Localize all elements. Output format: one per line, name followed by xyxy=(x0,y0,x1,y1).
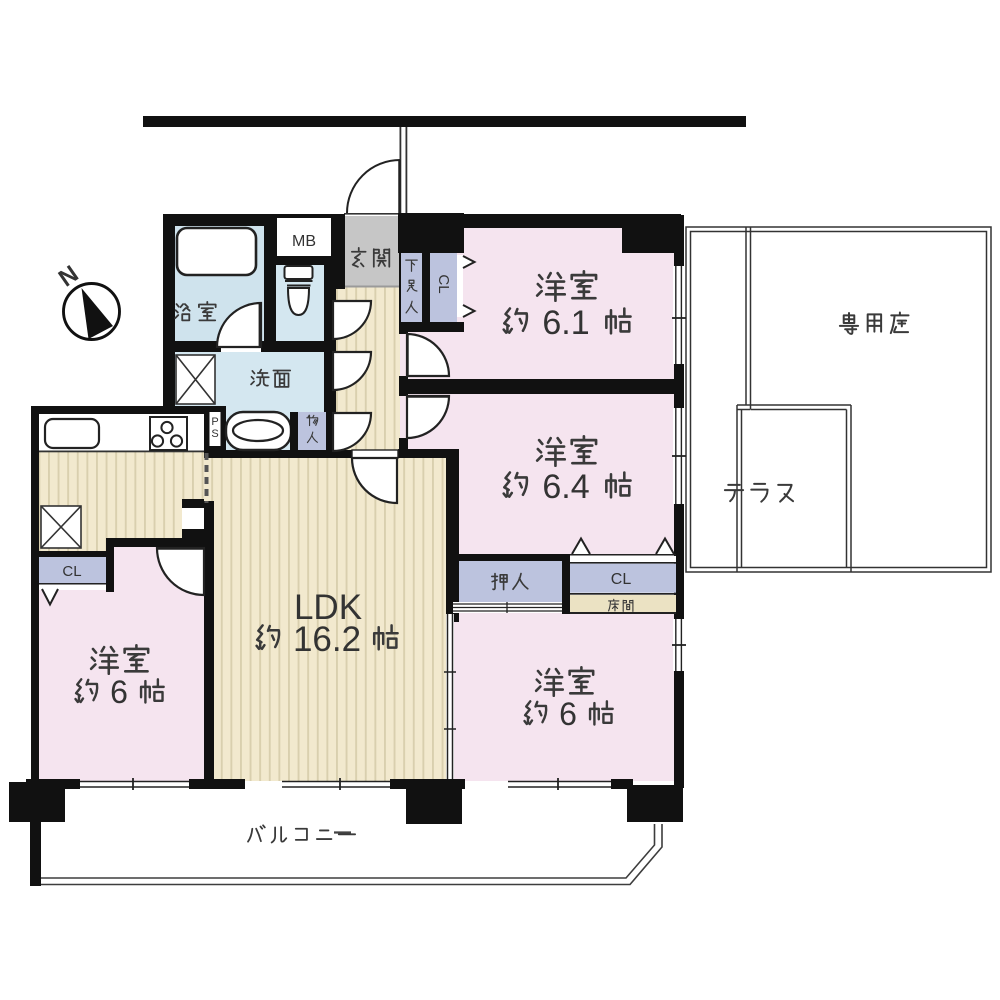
svg-text:6: 6 xyxy=(110,674,128,710)
svg-text:6.4: 6.4 xyxy=(542,468,589,506)
svg-text:P: P xyxy=(211,416,218,428)
svg-text:MB: MB xyxy=(292,233,316,250)
svg-text:CL: CL xyxy=(611,571,632,588)
svg-text:16.2: 16.2 xyxy=(293,620,361,659)
svg-text:6.1: 6.1 xyxy=(542,304,589,342)
svg-text:CL: CL xyxy=(62,563,81,580)
svg-text:S: S xyxy=(211,428,218,440)
svg-text:6: 6 xyxy=(559,696,577,732)
svg-text:CL: CL xyxy=(435,274,452,293)
